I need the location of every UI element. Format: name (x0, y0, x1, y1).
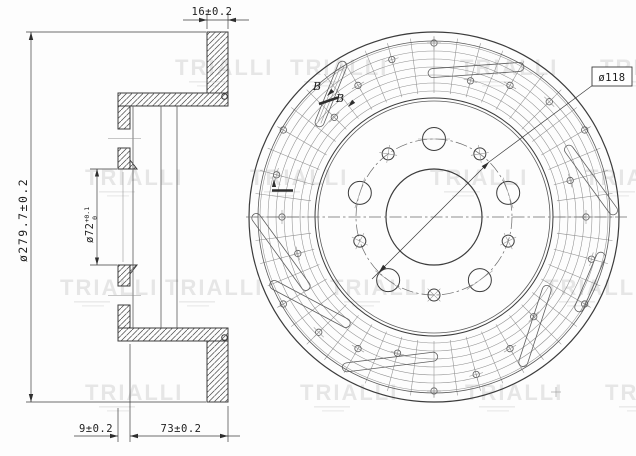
watermark-subline (619, 406, 636, 408)
dim-bore-text: ø72+0.10 (83, 207, 99, 243)
watermark-text: TRIALLI (545, 275, 636, 300)
radial-grid-line (411, 39, 418, 95)
radial-grid-line (450, 340, 457, 396)
watermark-subline (482, 85, 504, 87)
section-view: ø279.7±0.2 16±0.2 ø72+0.10 (16, 6, 249, 442)
dim-flange-thickness-text: 9±0.2 (79, 423, 113, 435)
watermark-subline (487, 410, 509, 412)
bore-chamfer-bottom (130, 265, 137, 274)
watermark-text: TRIALLI (605, 380, 636, 405)
dim-disc-thickness-text: 16±0.2 (192, 6, 233, 18)
dim-bore-value: ø72 (84, 223, 96, 243)
drawing-canvas: TRIALLITRIALLITRIALLITRIALLITRIALLITRIAL… (0, 0, 636, 456)
watermark-subline (99, 406, 135, 408)
radial-grid-line (557, 194, 613, 201)
watermark-subline (82, 305, 104, 307)
watermark-layer: TRIALLITRIALLITRIALLITRIALLITRIALLITRIAL… (60, 55, 636, 412)
radial-grid-line (522, 305, 562, 345)
vent-hole-tick (469, 373, 483, 377)
radial-grid-line (268, 264, 320, 285)
watermark-subline (107, 195, 129, 197)
dim-disc-thickness: 16±0.2 (183, 6, 249, 29)
brake-disc-technical-drawing: TRIALLITRIALLITRIALLITRIALLITRIALLITRIAL… (0, 0, 636, 456)
dim-overall-depth-text: 73±0.2 (161, 423, 202, 435)
section-mark-b2: B (335, 92, 344, 105)
watermark-subline (314, 406, 350, 408)
flange-top-lower (118, 148, 130, 169)
radial-grid-line (557, 233, 613, 240)
watermark-subline (479, 406, 515, 408)
watermark-subline (322, 410, 344, 412)
radial-grid-line (365, 332, 386, 384)
hat-web-bottom (118, 328, 228, 341)
dim-bore-tol-upper: +0.1 (83, 207, 91, 223)
watermark-subline (187, 305, 209, 307)
dim-bolt-circle-text: ø118 (598, 72, 625, 84)
radial-grid-line (256, 194, 312, 201)
dim-bore-tol-lower: 0 (91, 216, 99, 220)
watermark-text: TRIALLI (430, 165, 528, 190)
front-view: ø118 B B (246, 32, 632, 402)
section-mark-b1: B (312, 80, 321, 93)
watermark-subline (179, 301, 215, 303)
dim-outer-diameter-text: ø279.7±0.2 (16, 178, 30, 262)
radial-grid-line (256, 233, 312, 240)
watermark-subline (99, 191, 135, 193)
flange-bottom-upper (118, 265, 130, 286)
watermark-text: TRIALLI (60, 275, 158, 300)
braking-ring-top (207, 32, 228, 93)
watermark-subline (627, 410, 636, 412)
flange-bottom-lower (118, 305, 130, 328)
radial-grid-line (450, 39, 457, 95)
radial-grid-line (411, 340, 418, 396)
flange-top-upper (118, 106, 130, 129)
braking-ring-bottom (207, 341, 228, 402)
watermark-subline (74, 301, 110, 303)
hat-web-top (118, 93, 228, 106)
watermark-text: TRIALLI (165, 275, 263, 300)
dim-outer-diameter: ø279.7±0.2 (16, 32, 206, 402)
watermark-text: TRIALLI (85, 380, 183, 405)
radial-grid-line (481, 332, 502, 384)
